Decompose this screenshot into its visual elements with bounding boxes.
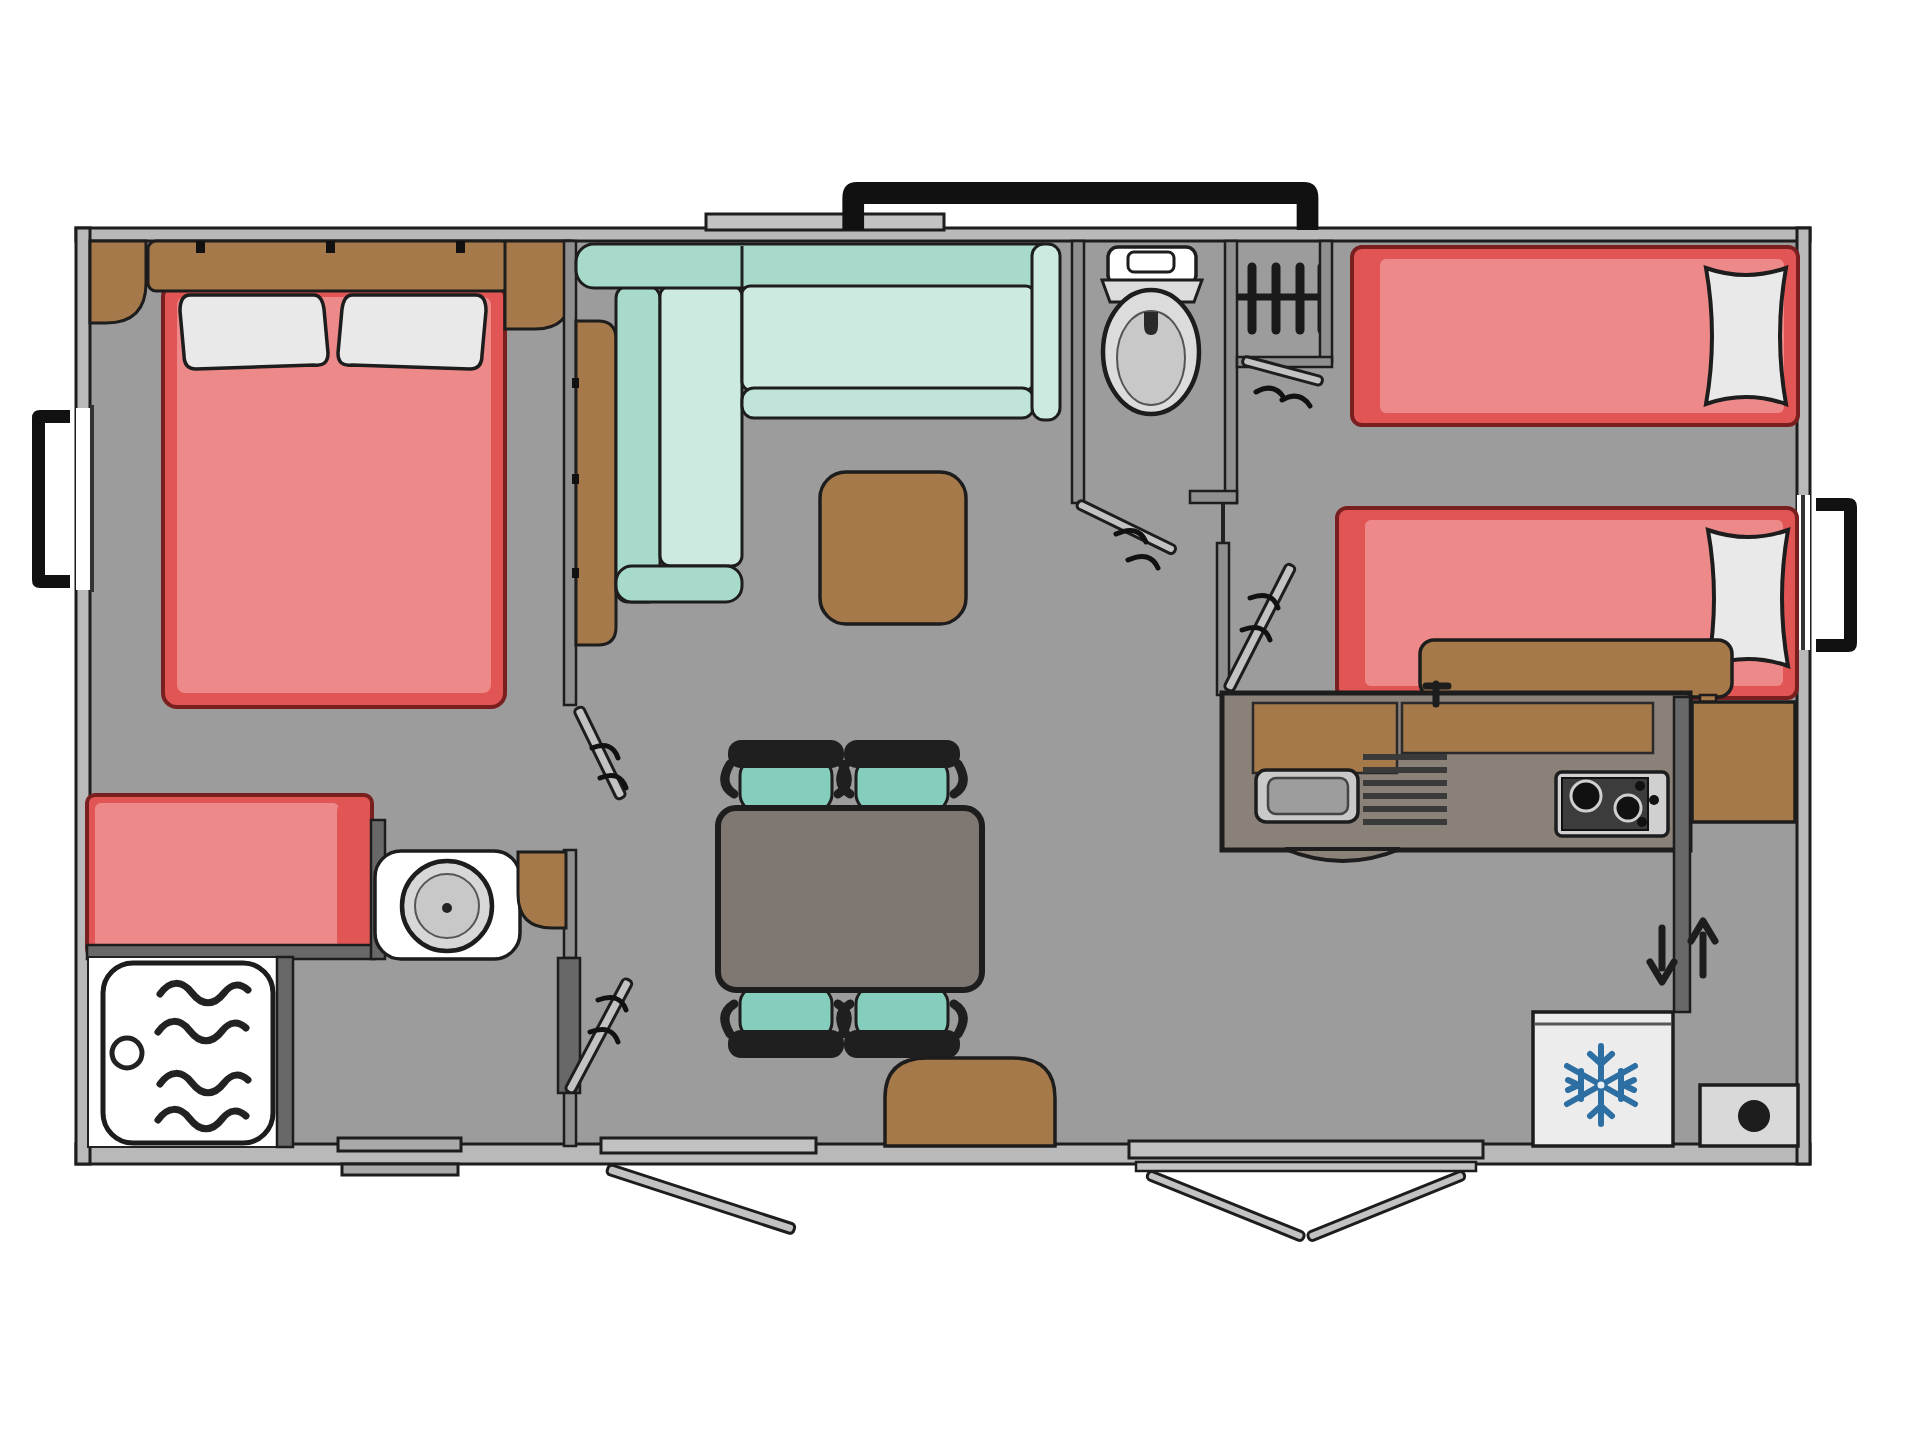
tall-cabinet: [576, 321, 616, 645]
wc-wall-right: [1225, 241, 1237, 503]
sink-basin: [1268, 778, 1348, 814]
sofa-front-cushion: [742, 388, 1034, 418]
floor-pouf: [885, 1058, 1055, 1146]
partition-wall-lower: [564, 1093, 576, 1146]
water-heater-dial: [1738, 1100, 1770, 1132]
main-entrance-double-door: [1129, 1141, 1483, 1242]
cabinet-hinge: [572, 378, 579, 388]
dining-chair: [725, 740, 847, 812]
sofa-chaise-seat: [660, 286, 742, 566]
sofa-chaise-arm: [616, 566, 742, 602]
shower-drain: [112, 1038, 142, 1068]
storage-bench: [1420, 640, 1732, 697]
hob-burner: [1571, 781, 1601, 811]
door-threshold: [1129, 1141, 1483, 1158]
headboard-notch: [196, 241, 205, 253]
nightstand: [505, 241, 571, 329]
headboard-notch: [326, 241, 335, 253]
shower-wall: [277, 957, 293, 1147]
door-threshold: [601, 1138, 816, 1153]
door-frame-bar: [1136, 1162, 1476, 1171]
toilet-flush-button: [1128, 252, 1174, 272]
chair-back: [844, 1030, 960, 1058]
dining-chair: [725, 986, 847, 1058]
window-right: [1797, 495, 1857, 652]
window-bottom-inner-bar: [342, 1164, 458, 1175]
pillow: [338, 295, 486, 369]
sofa-chaise-back: [616, 286, 660, 602]
corner-cabinet: [90, 241, 146, 323]
cabinet-hinge: [572, 568, 579, 578]
cabinet-hinge: [572, 474, 579, 484]
sofa-seat: [742, 286, 1034, 390]
hob-knob: [1635, 781, 1645, 791]
hob-burner: [1615, 795, 1641, 821]
chair-back: [728, 740, 844, 768]
dining-chair: [841, 740, 963, 812]
kitchen-cabinet: [1402, 703, 1653, 753]
window-right-bracket: [1816, 498, 1857, 652]
dining-chair: [841, 986, 963, 1058]
cupboard-wall: [1320, 241, 1332, 362]
floor-plan-drawing: [0, 0, 1920, 1440]
door-leaf-right: [1307, 1170, 1466, 1241]
kitchen-cabinet: [1253, 703, 1397, 773]
toilet-hinge-detail: [1144, 312, 1158, 335]
window-left-bracket: [32, 410, 70, 588]
window-left: [32, 405, 92, 592]
washbasin-drain: [442, 903, 452, 913]
chair-back: [844, 740, 960, 768]
sofa-back: [576, 244, 1058, 288]
hob-knob: [1649, 795, 1659, 805]
corner-shelf: [518, 852, 566, 928]
sofa-arm-right: [1032, 244, 1060, 420]
window-bottom-outer-bar: [338, 1138, 461, 1151]
single-bed-sheet: [95, 803, 339, 949]
wardrobe: [1692, 702, 1795, 822]
hallway-wall: [1217, 543, 1229, 695]
dining-table: [718, 808, 982, 990]
single-bed-bolster: [337, 803, 365, 949]
hob-knob: [1637, 817, 1647, 827]
headboard-notch: [456, 241, 465, 253]
wc-wall-bottom: [1190, 491, 1237, 503]
wc-wall-left: [1072, 241, 1084, 503]
partition-wall-upper: [564, 241, 576, 705]
window-left-gap: [76, 408, 90, 590]
chair-back: [728, 1030, 844, 1058]
floor-plan-page: [0, 0, 1920, 1440]
coffee-pouf: [820, 472, 966, 624]
twin-bed-1-pillow: [1706, 268, 1786, 404]
skylight-base: [706, 214, 944, 230]
door-leaf: [606, 1164, 795, 1234]
master-bedroom: [90, 241, 571, 707]
living-room-door: [601, 1138, 816, 1234]
door-leaf-left: [1146, 1170, 1305, 1241]
skylight-top: [706, 182, 1626, 230]
pillow: [180, 295, 328, 369]
